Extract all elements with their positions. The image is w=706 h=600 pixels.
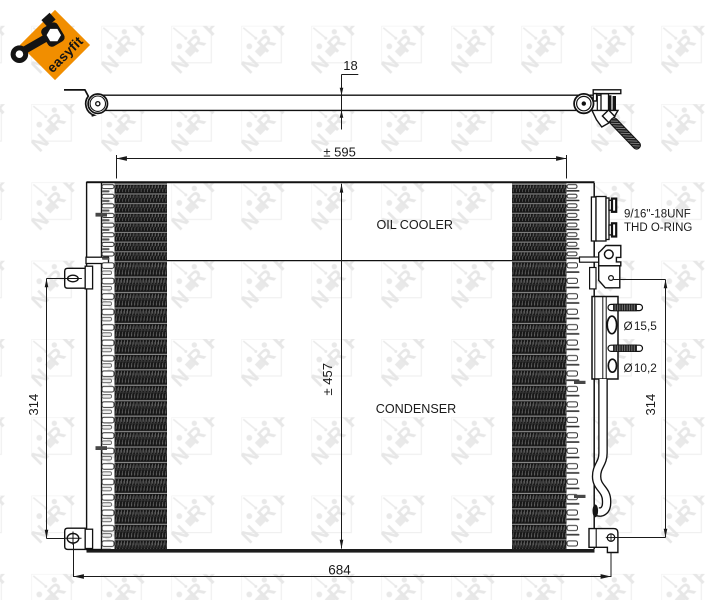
svg-text:18: 18	[343, 58, 357, 73]
svg-text:Ø10,2: Ø10,2	[624, 361, 657, 375]
svg-text:± 457: ± 457	[320, 363, 335, 395]
svg-text:684: 684	[328, 562, 351, 577]
svg-text:CONDENSER: CONDENSER	[376, 402, 456, 416]
svg-text:OIL COOLER: OIL COOLER	[376, 218, 453, 232]
svg-text:± 595: ± 595	[323, 145, 355, 160]
svg-text:9/16"-18UNF: 9/16"-18UNF	[624, 209, 691, 221]
svg-text:THD O-RING: THD O-RING	[624, 222, 692, 234]
svg-text:Ø15,5: Ø15,5	[624, 319, 658, 333]
svg-text:314: 314	[643, 394, 658, 416]
svg-text:314: 314	[26, 394, 41, 416]
